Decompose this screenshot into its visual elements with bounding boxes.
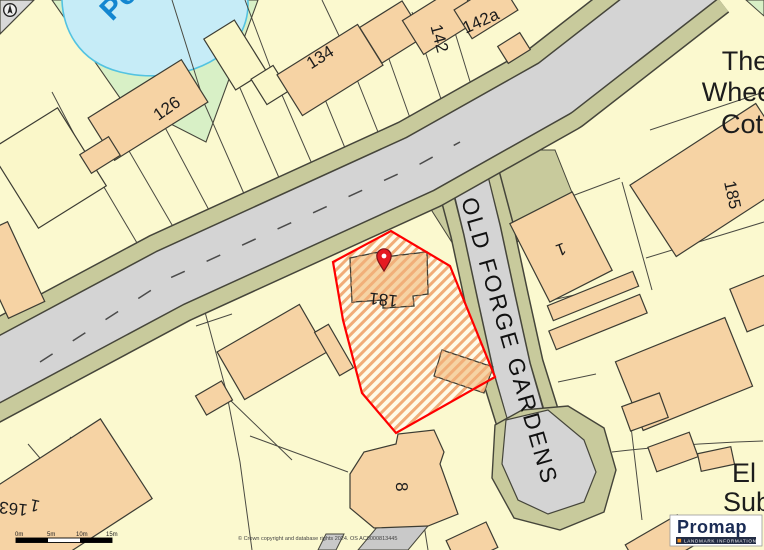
scale-tick-15: 15m	[106, 532, 118, 538]
scale-tick-10: 10m	[76, 532, 88, 538]
label-163: 163	[0, 498, 29, 520]
map-viewport[interactable]: 126 134 142 142a 185 1 181 8 163 1 Po OL…	[0, 0, 764, 550]
landmark-tagline: LANDMARK INFORMATION	[684, 539, 757, 544]
label-area-1: The	[722, 46, 764, 76]
scale-tick-0: 0m	[15, 532, 23, 538]
label-8: 8	[392, 482, 411, 492]
scale-tick-5: 5m	[47, 532, 55, 538]
map-canvas[interactable]: 126 134 142 142a 185 1 181 8 163 1 Po OL…	[0, 0, 764, 550]
label-el: El	[732, 458, 756, 488]
north-arrow-icon	[4, 4, 17, 17]
label-area-3: Cot	[721, 109, 764, 139]
copyright-text: © Crown copyright and database rights 20…	[238, 535, 397, 542]
label-181: 181	[368, 289, 398, 311]
promap-logo: Promap LANDMARK INFORMATION	[670, 515, 762, 546]
label-sub: Sub	[723, 487, 764, 517]
label-area-2: Whee	[702, 77, 764, 107]
promap-wordmark: Promap	[677, 517, 747, 537]
landmark-orange-square	[678, 539, 682, 543]
